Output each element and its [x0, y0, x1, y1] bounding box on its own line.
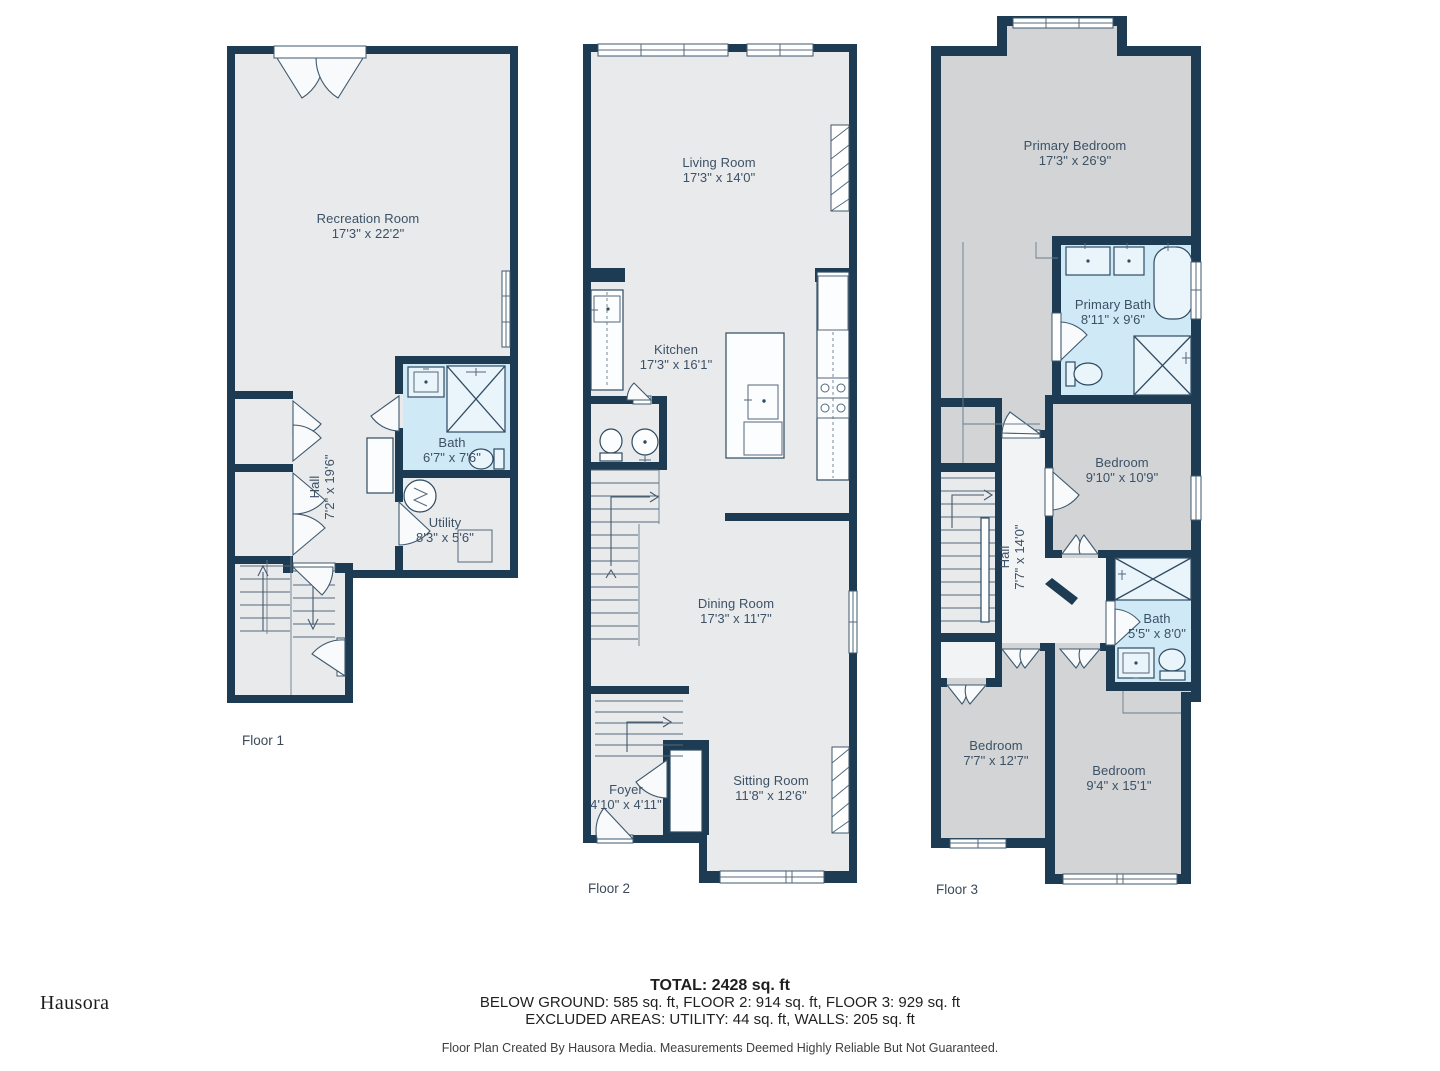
- window-primary-top: [1013, 18, 1113, 28]
- room-label-bedroom3: Bedroom7'7" x 12'7": [963, 738, 1028, 768]
- fireplace-living-icon: [831, 125, 849, 211]
- room-label-hall-f1: Hall7'2" x 19'6": [307, 454, 337, 519]
- floor-3-caption: Floor 3: [936, 882, 978, 897]
- room-label-living: Living Room17'3" x 14'0": [682, 155, 755, 185]
- toilet-icon: [1159, 649, 1185, 680]
- shower-icon: [1115, 558, 1191, 600]
- window-recreation-right: [502, 271, 510, 347]
- window-primary-bath-right: [1191, 262, 1201, 319]
- toilet-icon: [600, 429, 622, 453]
- floor-1-caption: Floor 1: [242, 733, 284, 748]
- room-label-dining: Dining Room17'3" x 11'7": [698, 596, 774, 626]
- room-label-primary-bath: Primary Bath8'11" x 9'6": [1075, 297, 1151, 327]
- total-area-text: TOTAL: 2428 sq. ft: [0, 977, 1440, 995]
- window-bedroom3-bottom: [950, 839, 1006, 848]
- water-heater-icon: [404, 480, 436, 512]
- foyer-closet: [670, 750, 702, 832]
- shower-icon: [447, 366, 505, 432]
- window-sitting-bottom: [720, 871, 824, 883]
- window-bedroom2-right: [1191, 476, 1201, 520]
- window-bedroom4-bottom: [1063, 874, 1177, 884]
- kitchen-island: [726, 333, 784, 458]
- bathtub-icon: [1154, 247, 1192, 319]
- room-label-bedroom4: Bedroom9'4" x 15'1": [1086, 763, 1151, 793]
- bath-sink-icon: [408, 367, 444, 397]
- room-label-utility: Utility8'3" x 5'6": [416, 515, 474, 545]
- floorplan-page: Recreation Room17'3" x 22'2" Hall7'2" x …: [0, 0, 1440, 1071]
- room-label-sitting: Sitting Room11'8" x 12'6": [733, 773, 809, 803]
- floor-2-caption: Floor 2: [588, 881, 630, 896]
- hall-cabinet: [367, 438, 393, 493]
- kitchen-counter-right: [817, 272, 849, 480]
- room-label-foyer: Foyer4'10" x 4'11": [590, 782, 662, 812]
- fireplace-sitting-icon: [832, 747, 849, 833]
- room-label-bath-f3: Bath5'5" x 8'0": [1128, 611, 1186, 641]
- room-label-kitchen: Kitchen17'3" x 16'1": [640, 342, 713, 372]
- toilet-icon: [1066, 362, 1102, 386]
- bath-sink-icon: [1118, 648, 1154, 678]
- disclaimer-text: Floor Plan Created By Hausora Media. Mea…: [0, 1041, 1440, 1055]
- room-label-primary-bedroom: Primary Bedroom17'3" x 26'9": [1024, 138, 1127, 168]
- shower-icon: [1134, 336, 1191, 395]
- excluded-areas-text: EXCLUDED AREAS: UTILITY: 44 sq. ft, WALL…: [0, 1012, 1440, 1029]
- room-label-bath-f1: Bath6'7" x 7'6": [423, 435, 481, 465]
- window-living-top: [598, 44, 813, 56]
- area-summary: TOTAL: 2428 sq. ft BELOW GROUND: 585 sq.…: [0, 977, 1440, 1055]
- floor-breakdown-text: BELOW GROUND: 585 sq. ft, FLOOR 2: 914 s…: [0, 995, 1440, 1012]
- double-vanity-icon: [1066, 243, 1144, 275]
- room-label-hall-f3: Hall7'7" x 14'0": [997, 524, 1027, 589]
- room-label-recreation: Recreation Room17'3" x 22'2": [317, 211, 420, 241]
- floor-1-plan: [227, 46, 518, 703]
- kitchen-counter-left: [591, 290, 623, 390]
- window-dining-right: [849, 591, 857, 653]
- room-label-bedroom2: Bedroom9'10" x 10'9": [1086, 455, 1159, 485]
